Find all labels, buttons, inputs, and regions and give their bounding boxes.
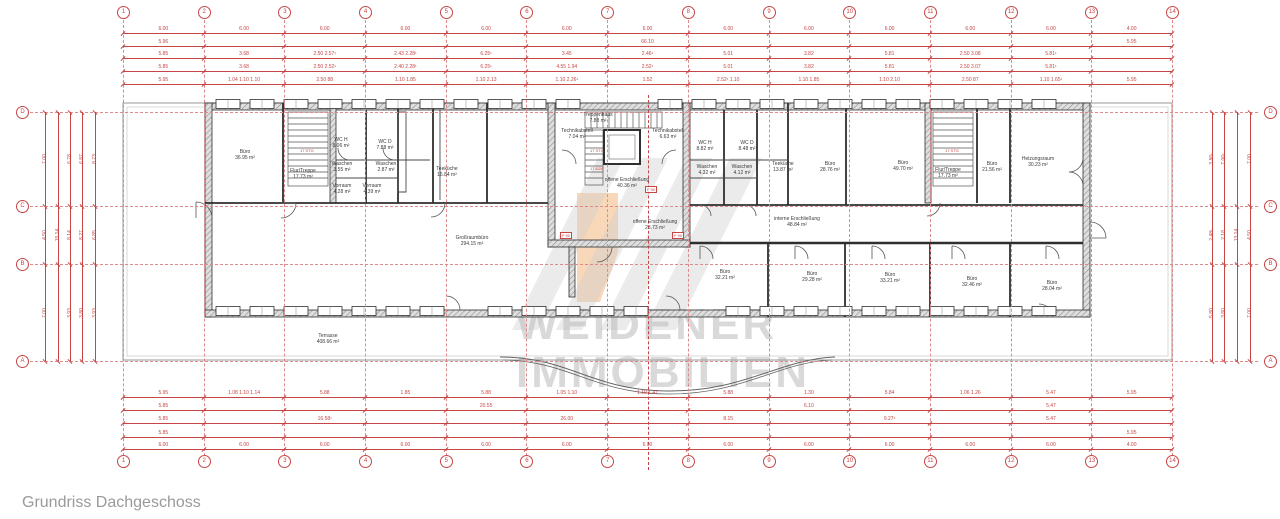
dimension-label: 5.85 bbox=[128, 51, 198, 57]
dimension-label: 6.00 bbox=[855, 442, 925, 448]
room-area: 17.73 m² bbox=[263, 174, 343, 180]
room-label: Büro33.21 m² bbox=[850, 272, 930, 284]
dimension-label: 7.06¹ bbox=[1221, 139, 1227, 179]
grid-bubble-top: 10 bbox=[843, 6, 856, 19]
dimension-label: 4.55 1.94 bbox=[532, 64, 602, 70]
dimension-label: 6.00 bbox=[128, 442, 198, 448]
dimension-label: 8.27 bbox=[79, 215, 85, 255]
grid-bubble-bottom: 14 bbox=[1166, 455, 1179, 468]
grid-bubble-bottom: 8 bbox=[682, 455, 695, 468]
drawing-caption: Grundriss Dachgeschoss bbox=[22, 494, 201, 512]
dimension-label: 5.95 bbox=[1097, 390, 1167, 396]
grid-line-vertical bbox=[930, 20, 931, 466]
dimension-label: 3.68 bbox=[209, 51, 279, 57]
dimension-label: 4.00 bbox=[1097, 26, 1167, 32]
room-label: Büro28.04 m² bbox=[1012, 280, 1092, 292]
dimension-label: 6.10 bbox=[774, 403, 844, 409]
grid-bubble-bottom: 6 bbox=[520, 455, 533, 468]
dimension-label: 6.25¹ bbox=[451, 64, 521, 70]
dimension-label: 3.45 bbox=[532, 51, 602, 57]
dimension-label: 6.00 bbox=[370, 26, 440, 32]
grid-bubble-top: 12 bbox=[1005, 6, 1018, 19]
grid-bubble-right: B bbox=[1264, 258, 1277, 271]
dimension-label: 6.00 bbox=[290, 442, 360, 448]
floorplan-drawing: WEIDENER IMMOBILIEN bbox=[0, 0, 1280, 519]
dimension-label: 6.25¹ bbox=[451, 51, 521, 57]
dimension-label: 13.14 bbox=[1234, 215, 1240, 255]
dimension-label: 6.00 bbox=[532, 26, 602, 32]
dimension-line bbox=[123, 71, 1172, 72]
dimension-label: 5.95 bbox=[1097, 39, 1167, 45]
dimension-label: 1.04 1.10 1.10 bbox=[209, 77, 279, 83]
dimension-line bbox=[123, 33, 1172, 34]
dimension-label: 2.48¹ bbox=[1209, 215, 1215, 255]
dimension-label: 5.85 bbox=[128, 416, 198, 422]
grid-line-vertical bbox=[769, 20, 770, 466]
dimension-label: 1.85 bbox=[370, 390, 440, 396]
grid-bubble-top: 3 bbox=[278, 6, 291, 19]
grid-bubble-top: 8 bbox=[682, 6, 695, 19]
dimension-label: 5.80 bbox=[1209, 293, 1215, 333]
room-label: WC D8.48 m² bbox=[707, 140, 787, 152]
room-area: 7.88 m² bbox=[558, 118, 638, 124]
dimension-label: 5.81 bbox=[855, 51, 925, 57]
dimension-label: 26.00 bbox=[532, 416, 602, 422]
room-area: 30.23 m² bbox=[998, 162, 1078, 168]
room-area: 4.39 m² bbox=[332, 189, 412, 195]
grid-bubble-bottom: 1 bbox=[117, 455, 130, 468]
room-area: 36.95 m² bbox=[205, 155, 285, 161]
dimension-label: 7.00 bbox=[1247, 293, 1253, 333]
dimension-label: 5.95 bbox=[1097, 430, 1167, 436]
grid-line-horizontal bbox=[30, 361, 1258, 362]
room-label: Treppenhaus7.88 m² bbox=[558, 112, 638, 124]
dimension-label: 2.52¹ bbox=[612, 64, 682, 70]
dimension-label: 1.10 1.85 bbox=[774, 77, 844, 83]
dimension-label: 2.43 2.28¹ bbox=[370, 51, 440, 57]
dimension-label: 2.50 3.08 bbox=[935, 51, 1005, 57]
dimension-label: 6.00 bbox=[693, 442, 763, 448]
dimension-label: 5.88 bbox=[451, 390, 521, 396]
dimension-label: 16.58¹ bbox=[290, 416, 360, 422]
dimension-label: 5.01 bbox=[693, 64, 763, 70]
stair-annotation: 17 STG bbox=[945, 148, 959, 153]
dimension-label: 6.00 bbox=[1016, 442, 1086, 448]
dimension-label: 1.08 1.10 1.14 bbox=[209, 390, 279, 396]
room-area: 16.84 m² bbox=[407, 172, 487, 178]
dimension-label: 1.06 1.26 bbox=[935, 390, 1005, 396]
grid-bubble-bottom: 2 bbox=[198, 455, 211, 468]
grid-line-horizontal bbox=[30, 264, 1258, 265]
dimension-label: 1.10 2.13 bbox=[451, 77, 521, 83]
grid-line-vertical bbox=[1172, 20, 1173, 466]
grid-bubble-top: 4 bbox=[359, 6, 372, 19]
grid-bubble-top: 5 bbox=[440, 6, 453, 19]
grid-bubble-top: 7 bbox=[601, 6, 614, 19]
dimension-label: 2.40 2.28¹ bbox=[370, 64, 440, 70]
dimension-label: 5.01 bbox=[693, 51, 763, 57]
dimension-label: 5.81¹ bbox=[1016, 64, 1086, 70]
room-label: Großraumbüro294.15 m² bbox=[432, 235, 512, 247]
room-area: 32.21 m² bbox=[685, 275, 765, 281]
grid-bubble-bottom: 12 bbox=[1005, 455, 1018, 468]
room-area: 294.15 m² bbox=[432, 241, 512, 247]
dimension-label: 1.05 1.10 bbox=[532, 390, 602, 396]
dimension-line bbox=[123, 84, 1172, 85]
dimension-label: 5.95 bbox=[1097, 77, 1167, 83]
dimension-label: 6.00 bbox=[1016, 26, 1086, 32]
dimension-label: 3.68 bbox=[209, 64, 279, 70]
grid-bubble-top: 1 bbox=[117, 6, 130, 19]
grid-bubble-bottom: 3 bbox=[278, 455, 291, 468]
dimension-label: 66.10 bbox=[612, 39, 682, 45]
room-area: 28.76 m² bbox=[790, 167, 870, 173]
dimension-label: 2.50 2.57¹ bbox=[290, 51, 360, 57]
dimension-label: 6.00 bbox=[209, 26, 279, 32]
dimension-label: 5.85 bbox=[128, 430, 198, 436]
dimension-label: 5.47 bbox=[1016, 403, 1086, 409]
fire-rating-marker: F 90 bbox=[560, 232, 572, 239]
section-line bbox=[648, 95, 649, 470]
stair-annotation: 17 STG bbox=[300, 148, 314, 153]
room-label: Teeküche16.84 m² bbox=[407, 166, 487, 178]
grid-line-vertical bbox=[1011, 20, 1012, 466]
room-area: 408.66 m² bbox=[288, 339, 368, 345]
grid-line-vertical bbox=[526, 20, 527, 466]
grid-line-horizontal bbox=[30, 206, 1258, 207]
dimension-label: 6.85 bbox=[92, 215, 98, 255]
dimension-label: 5.85 bbox=[128, 403, 198, 409]
dimension-label: 6.87 bbox=[79, 139, 85, 179]
dimension-label: 6.00 bbox=[774, 26, 844, 32]
grid-bubble-bottom: 10 bbox=[843, 455, 856, 468]
room-label: Büro29.28 m² bbox=[772, 271, 852, 283]
grid-bubble-bottom: 5 bbox=[440, 455, 453, 468]
grid-bubble-right: C bbox=[1264, 200, 1277, 213]
dimension-label: 6.00 bbox=[855, 26, 925, 32]
grid-bubble-top: 2 bbox=[198, 6, 211, 19]
room-label: Technikabstell7.04 m² bbox=[537, 128, 617, 140]
dimension-label: 5.85 bbox=[128, 64, 198, 70]
room-area: 23.73 m² bbox=[615, 225, 695, 231]
dimension-label: 1.10 1.65¹ bbox=[1016, 77, 1086, 83]
dimension-label: 5.84 bbox=[855, 390, 925, 396]
dimension-label: 5.47 bbox=[1016, 416, 1086, 422]
grid-bubble-right: D bbox=[1264, 106, 1277, 119]
room-label: Terrasse408.66 m² bbox=[288, 333, 368, 345]
room-area: 29.28 m² bbox=[772, 277, 852, 283]
room-area: 48.84 m² bbox=[757, 222, 837, 228]
dimension-label: 6.00 bbox=[451, 442, 521, 448]
dimension-label: 3.93 bbox=[67, 293, 73, 333]
grid-line-vertical bbox=[365, 20, 366, 466]
room-label: Vorraum4.39 m² bbox=[332, 183, 412, 195]
room-area: 33.21 m² bbox=[850, 278, 930, 284]
grid-bubble-top: 14 bbox=[1166, 6, 1179, 19]
dimension-label: 3.82 bbox=[774, 64, 844, 70]
dimension-line bbox=[123, 46, 1172, 47]
dimension-overlay: 11223344556677889910101111121213131414DD… bbox=[0, 0, 1280, 519]
grid-bubble-bottom: 7 bbox=[601, 455, 614, 468]
grid-bubble-bottom: 9 bbox=[763, 455, 776, 468]
dimension-line bbox=[123, 58, 1172, 59]
dimension-label: 3.93 bbox=[92, 293, 98, 333]
dimension-label: 6.78 bbox=[67, 139, 73, 179]
dimension-label: 5.47 bbox=[1016, 390, 1086, 396]
grid-line-vertical bbox=[849, 20, 850, 466]
dimension-label: 8.15 bbox=[693, 416, 763, 422]
room-label: Büro28.76 m² bbox=[790, 161, 870, 173]
dimension-label: 2.50 2.52¹ bbox=[290, 64, 360, 70]
dimension-label: 5.95 bbox=[128, 77, 198, 83]
dimension-label: 3.82 bbox=[774, 51, 844, 57]
grid-line-vertical bbox=[204, 20, 205, 466]
dimension-label: 9.27¹ bbox=[855, 416, 925, 422]
stair-annotation: 17.6/28 bbox=[590, 166, 603, 171]
grid-bubble-bottom: 4 bbox=[359, 455, 372, 468]
room-label: Büro36.95 m² bbox=[205, 149, 285, 161]
dimension-label: 1.10 1.85 bbox=[370, 77, 440, 83]
grid-line-vertical bbox=[284, 20, 285, 466]
dimension-label: 6.00 bbox=[290, 26, 360, 32]
grid-bubble-top: 6 bbox=[520, 6, 533, 19]
dimension-label: 6.00 bbox=[370, 442, 440, 448]
dimension-label: 5.88 bbox=[693, 390, 763, 396]
grid-bubble-top: 9 bbox=[763, 6, 776, 19]
dimension-label: 1.10 2.10 bbox=[855, 77, 925, 83]
dimension-label: 2.50 87 bbox=[935, 77, 1005, 83]
dimension-label: 7.00 bbox=[42, 293, 48, 333]
room-area: 7.88 m² bbox=[345, 145, 425, 151]
dimension-label: 5.95 bbox=[128, 390, 198, 396]
grid-bubble-left: B bbox=[16, 258, 29, 271]
dimension-label: 5.81 bbox=[855, 64, 925, 70]
grid-line-vertical bbox=[1091, 20, 1092, 466]
room-area: 28.04 m² bbox=[1012, 286, 1092, 292]
dimension-label: 6.00 bbox=[774, 442, 844, 448]
grid-bubble-left: D bbox=[16, 106, 29, 119]
fire-rating-marker: F 90 bbox=[645, 186, 657, 193]
dimension-label: 2.50 3.07 bbox=[935, 64, 1005, 70]
grid-bubble-bottom: 11 bbox=[924, 455, 937, 468]
grid-line-vertical bbox=[607, 20, 608, 466]
room-area: 7.04 m² bbox=[537, 134, 617, 140]
room-label: Technikabstell6.63 m² bbox=[628, 128, 708, 140]
dimension-label: 1.10 2.26¹ bbox=[532, 77, 602, 83]
grid-bubble-top: 11 bbox=[924, 6, 937, 19]
dimension-label: 8.14 bbox=[67, 215, 73, 255]
dimension-label: 3.80 bbox=[1221, 293, 1227, 333]
grid-bubble-top: 13 bbox=[1085, 6, 1098, 19]
dimension-label: 5.81¹ bbox=[1016, 51, 1086, 57]
fire-rating-marker: F 90 bbox=[672, 232, 684, 239]
dimension-label: 2.18 bbox=[1221, 215, 1227, 255]
dimension-label: 6.00 bbox=[128, 26, 198, 32]
grid-line-horizontal bbox=[30, 112, 1258, 113]
room-area: 32.46 m² bbox=[932, 282, 1012, 288]
dimension-label: 6.00 bbox=[935, 442, 1005, 448]
dimension-label: 1.52 bbox=[612, 77, 682, 83]
dimension-label: 20.55 bbox=[451, 403, 521, 409]
room-area: 8.48 m² bbox=[707, 146, 787, 152]
grid-line-vertical bbox=[688, 20, 689, 466]
dimension-label: 4.00 bbox=[1097, 442, 1167, 448]
dimension-label: 6.00 bbox=[935, 26, 1005, 32]
dimension-label: 2.50 88 bbox=[290, 77, 360, 83]
dimension-label: 6.00 bbox=[209, 442, 279, 448]
dimension-label: 8.73 bbox=[92, 139, 98, 179]
dimension-label: 3.86¹ bbox=[1209, 139, 1215, 179]
grid-bubble-left: C bbox=[16, 200, 29, 213]
room-label: Heizungsraum30.23 m² bbox=[998, 156, 1078, 168]
room-label: Büro32.21 m² bbox=[685, 269, 765, 281]
room-area: 17.73 m² bbox=[908, 173, 988, 179]
dimension-label: 6.00 bbox=[693, 26, 763, 32]
dimension-label: 5.96 bbox=[128, 39, 198, 45]
dimension-label: 7.00 bbox=[1247, 139, 1253, 179]
room-label: interne Erschließung48.84 m² bbox=[757, 216, 837, 228]
dimension-label: 4.50 bbox=[42, 215, 48, 255]
dimension-label: 7.00 bbox=[42, 139, 48, 179]
dimension-label: 6.00 bbox=[612, 26, 682, 32]
grid-bubble-bottom: 13 bbox=[1085, 455, 1098, 468]
dimension-label: 15.14 bbox=[55, 215, 61, 255]
grid-bubble-left: A bbox=[16, 355, 29, 368]
room-label: Büro32.46 m² bbox=[932, 276, 1012, 288]
dimension-label: 2.52¹ 1.10 bbox=[693, 77, 763, 83]
dimension-label: 6.00 bbox=[532, 442, 602, 448]
dimension-label: 2.46¹ bbox=[612, 51, 682, 57]
room-label: WC D7.88 m² bbox=[345, 139, 425, 151]
dimension-label: 4.50 bbox=[1247, 215, 1253, 255]
room-label: offene Erschließung23.73 m² bbox=[615, 219, 695, 231]
stair-annotation: 17 STG bbox=[590, 148, 604, 153]
dimension-label: 3.80 bbox=[79, 293, 85, 333]
grid-bubble-right: A bbox=[1264, 355, 1277, 368]
grid-line-vertical bbox=[123, 20, 124, 466]
dimension-label: 5.88 bbox=[290, 390, 360, 396]
dimension-label: 6.00 bbox=[451, 26, 521, 32]
dimension-label: 1.30 bbox=[774, 390, 844, 396]
